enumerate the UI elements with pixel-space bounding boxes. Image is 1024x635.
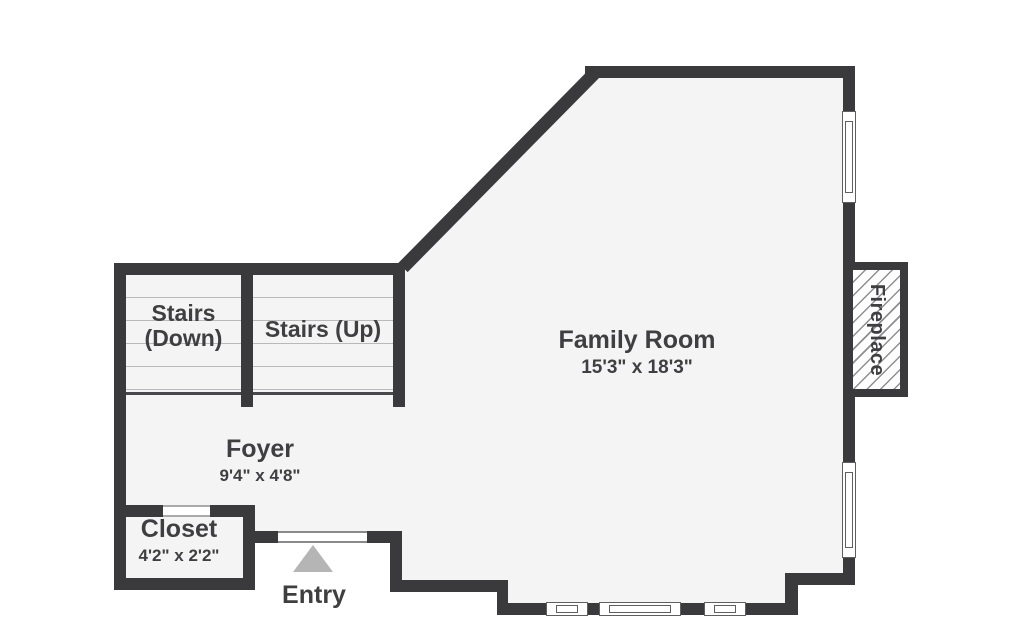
wall-bottom-right [798,573,855,585]
family-room-dims: 15'3" x 18'3" [487,357,787,378]
stairs-down-line2: (Down) [126,326,241,351]
entry-door [278,531,367,543]
window-glass [714,605,736,613]
stairs-down-line1: Stairs [126,301,241,326]
wall-bottom-mid [390,580,508,592]
room-label-entry: Entry [264,582,364,609]
closet-name: Closet [116,516,242,543]
room-label-family-room: Family Room 15'3" x 18'3" [487,327,787,378]
wall-stairs-divider [241,263,253,407]
floor-plan: Fireplace Stairs (Down) Stairs (Up) Fami… [0,0,1024,635]
window-glass [845,121,853,193]
window-glass [556,605,578,613]
window [842,462,856,558]
window [599,602,681,616]
window-glass [609,605,671,613]
window [842,111,856,203]
wall-stairs-top [114,263,405,275]
wall-top [585,66,855,78]
window [546,602,588,616]
room-label-stairs-down: Stairs (Down) [126,301,241,351]
entry-arrow-icon [293,545,333,572]
closet-dims: 4'2" x 2'2" [116,546,242,565]
room-label-stairs-up: Stairs (Up) [253,317,393,342]
room-label-fireplace: Fireplace [866,260,888,400]
foyer-dims: 9'4" x 4'8" [160,466,360,485]
wall-closet-bottom [114,578,255,590]
foyer-name: Foyer [160,436,360,463]
room-label-closet: Closet 4'2" x 2'2" [116,516,242,565]
window-glass [845,472,853,548]
wall-stairs-right [393,263,405,407]
room-label-foyer: Foyer 9'4" x 4'8" [160,436,360,485]
window [704,602,746,616]
family-room-name: Family Room [487,327,787,354]
